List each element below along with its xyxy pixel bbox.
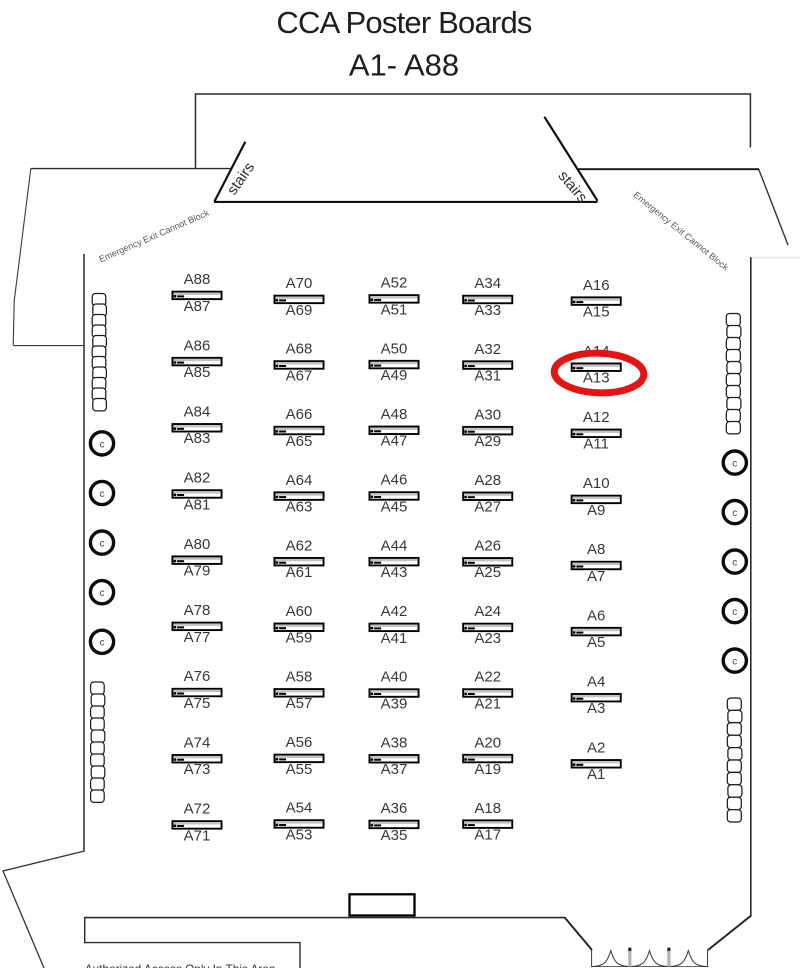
svg-text:A30: A30: [474, 406, 501, 423]
svg-text:stairs: stairs: [555, 168, 591, 206]
svg-text:A44: A44: [381, 537, 408, 554]
svg-text:A33: A33: [474, 302, 501, 319]
svg-text:A78: A78: [184, 602, 211, 619]
svg-text:A16: A16: [583, 277, 610, 294]
svg-text:c: c: [100, 638, 105, 649]
svg-text:A84: A84: [184, 404, 211, 421]
svg-text:A54: A54: [286, 800, 313, 817]
svg-text:A2: A2: [587, 740, 605, 757]
svg-text:CCA Poster Boards: CCA Poster Boards: [276, 5, 531, 40]
svg-text:A68: A68: [286, 341, 313, 358]
svg-text:A21: A21: [474, 695, 501, 712]
svg-text:A1- A88: A1- A88: [349, 48, 459, 83]
svg-text:A55: A55: [286, 761, 313, 778]
svg-text:A62: A62: [286, 537, 313, 554]
svg-text:A17: A17: [474, 827, 501, 844]
svg-text:A40: A40: [381, 669, 408, 686]
svg-text:A59: A59: [286, 630, 313, 647]
svg-text:A45: A45: [381, 498, 408, 515]
svg-text:A66: A66: [286, 406, 313, 423]
svg-text:A75: A75: [184, 695, 211, 712]
svg-text:A29: A29: [474, 433, 501, 450]
svg-text:A35: A35: [381, 827, 408, 844]
svg-text:A64: A64: [286, 472, 313, 489]
svg-text:c: c: [732, 607, 737, 618]
svg-text:A85: A85: [184, 364, 211, 381]
svg-text:A81: A81: [184, 496, 211, 513]
svg-text:A12: A12: [583, 409, 610, 426]
svg-text:A77: A77: [184, 629, 211, 646]
svg-text:A70: A70: [286, 275, 313, 292]
svg-text:A25: A25: [474, 564, 501, 581]
svg-text:A56: A56: [286, 734, 313, 751]
svg-text:c: c: [100, 588, 105, 599]
svg-text:A23: A23: [474, 630, 501, 647]
svg-text:A52: A52: [381, 275, 408, 292]
svg-text:A18: A18: [474, 800, 501, 817]
svg-text:c: c: [732, 459, 737, 470]
svg-text:A24: A24: [474, 603, 501, 620]
svg-text:A28: A28: [474, 472, 501, 489]
svg-text:A76: A76: [184, 668, 211, 685]
svg-text:A3: A3: [587, 700, 605, 717]
svg-text:A72: A72: [184, 801, 211, 818]
svg-text:A27: A27: [474, 499, 501, 516]
svg-text:A22: A22: [474, 669, 501, 686]
svg-text:A5: A5: [587, 634, 605, 651]
svg-text:A10: A10: [583, 475, 610, 492]
svg-text:A42: A42: [381, 603, 408, 620]
svg-text:A7: A7: [587, 568, 605, 585]
svg-text:A32: A32: [474, 341, 501, 358]
svg-text:A53: A53: [286, 826, 313, 843]
svg-text:A83: A83: [184, 430, 211, 447]
svg-text:c: c: [100, 489, 105, 500]
svg-text:Authorized Access Only In This: Authorized Access Only In This Area: [85, 962, 276, 968]
svg-text:A38: A38: [381, 734, 408, 751]
svg-text:A4: A4: [587, 673, 605, 690]
svg-text:A9: A9: [587, 502, 605, 519]
svg-text:A37: A37: [381, 761, 408, 778]
svg-text:A6: A6: [587, 607, 605, 624]
svg-text:A71: A71: [184, 827, 211, 844]
svg-text:A67: A67: [286, 367, 313, 384]
svg-text:A69: A69: [286, 302, 313, 319]
svg-text:A13: A13: [583, 370, 610, 387]
svg-text:A26: A26: [474, 538, 501, 555]
svg-text:A58: A58: [286, 669, 313, 686]
svg-text:A15: A15: [583, 304, 610, 321]
svg-text:Emergency Exit Cannot Block: Emergency Exit Cannot Block: [632, 190, 731, 273]
svg-text:A19: A19: [474, 761, 501, 778]
svg-text:A20: A20: [474, 734, 501, 751]
svg-text:A74: A74: [184, 734, 211, 751]
svg-text:A73: A73: [184, 761, 211, 778]
svg-text:A61: A61: [286, 564, 313, 581]
svg-text:A46: A46: [381, 472, 408, 489]
svg-text:A8: A8: [587, 541, 605, 558]
svg-text:A60: A60: [286, 603, 313, 620]
svg-text:stairs: stairs: [224, 159, 258, 198]
svg-text:A36: A36: [381, 800, 408, 817]
svg-text:A43: A43: [381, 564, 408, 581]
svg-text:A80: A80: [184, 536, 211, 553]
svg-text:A34: A34: [474, 275, 501, 292]
svg-text:A51: A51: [381, 301, 408, 318]
svg-text:A79: A79: [184, 563, 211, 580]
svg-text:A1: A1: [587, 766, 605, 783]
svg-text:A88: A88: [184, 271, 211, 288]
svg-text:A11: A11: [583, 436, 609, 453]
svg-text:c: c: [732, 508, 737, 519]
svg-text:A63: A63: [286, 499, 313, 516]
svg-text:A57: A57: [286, 695, 313, 712]
svg-text:c: c: [100, 539, 105, 550]
svg-text:Emergency Exit Cannot Block: Emergency Exit Cannot Block: [97, 207, 211, 264]
svg-text:A50: A50: [381, 340, 408, 357]
svg-text:A47: A47: [381, 433, 408, 450]
svg-text:A82: A82: [184, 470, 211, 487]
svg-text:A86: A86: [184, 337, 211, 354]
svg-text:A65: A65: [286, 433, 313, 450]
svg-text:c: c: [732, 558, 737, 569]
svg-text:A49: A49: [381, 367, 408, 384]
svg-text:A48: A48: [381, 406, 408, 423]
svg-text:c: c: [732, 657, 737, 668]
svg-text:c: c: [100, 439, 105, 450]
svg-text:A31: A31: [474, 368, 501, 385]
svg-text:A39: A39: [381, 695, 408, 712]
svg-text:A87: A87: [184, 298, 211, 315]
svg-text:A41: A41: [381, 630, 408, 647]
